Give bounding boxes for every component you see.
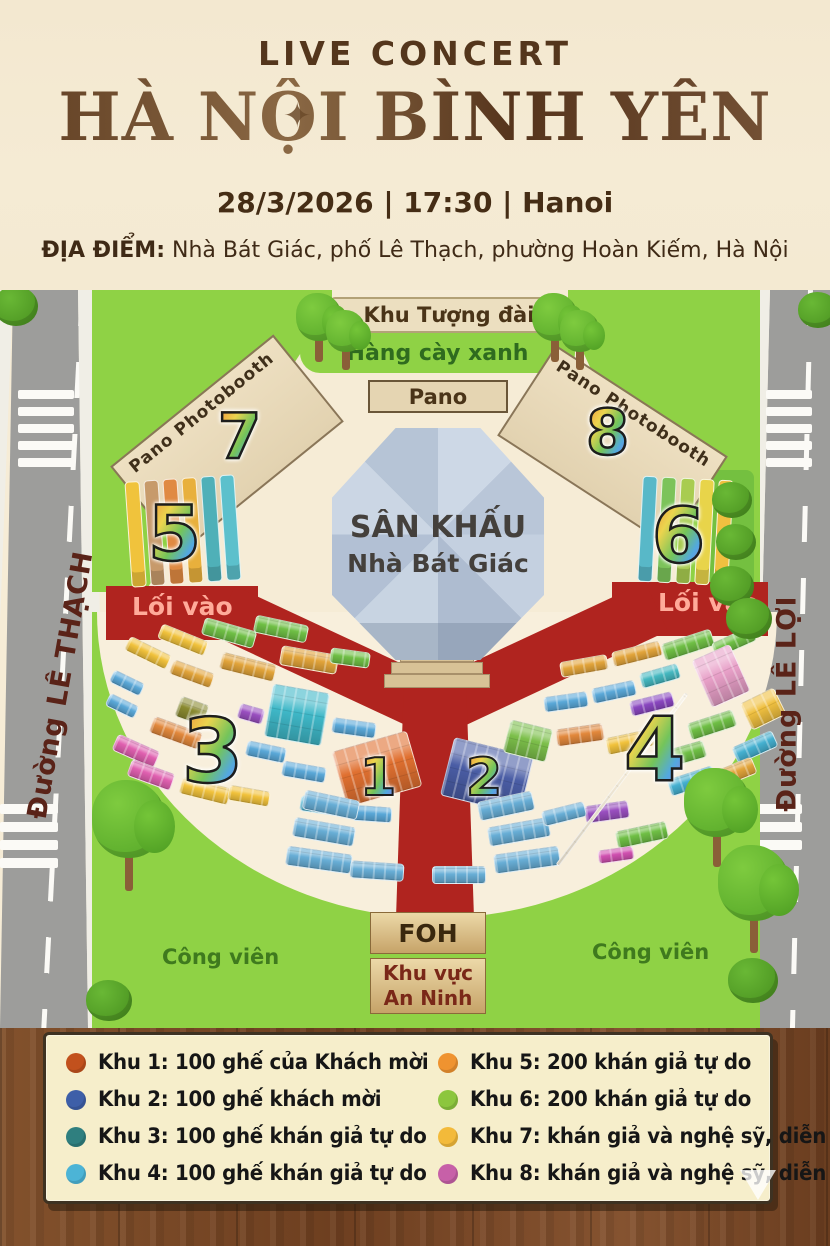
legend-text: Khu 7: khán giả và nghệ sỹ, diễn viên bbox=[470, 1124, 830, 1149]
zone-number-2: 2 bbox=[466, 752, 502, 804]
legend-dot-icon bbox=[66, 1090, 86, 1110]
tree-icon bbox=[718, 845, 790, 953]
stage-title: SÂN KHẤU bbox=[350, 510, 526, 545]
bush-icon bbox=[726, 598, 772, 639]
legend-box: Khu 1: 100 ghế của Khách mờiKhu 2: 100 g… bbox=[43, 1032, 773, 1204]
zone-number-5: 5 bbox=[148, 496, 201, 572]
tree-icon bbox=[326, 310, 366, 370]
zone-number-3: 3 bbox=[182, 708, 243, 796]
stage-octagon: SÂN KHẤU Nhà Bát Giác bbox=[332, 428, 544, 660]
legend-dot-icon bbox=[438, 1127, 458, 1147]
venue-map: Lối vào Lối vào Khu Tượng đài Hàng cày x… bbox=[0, 290, 830, 1028]
crosswalk bbox=[18, 390, 74, 467]
pano-sign: Pano bbox=[368, 380, 508, 413]
legend-dot-icon bbox=[438, 1053, 458, 1073]
park-label-left: Công viên bbox=[162, 945, 279, 969]
poster-header: LIVE CONCERT HÀ NỘI BÌNH YÊN ✦ 28/3/2026… bbox=[0, 0, 830, 290]
legend-dot-icon bbox=[438, 1164, 458, 1184]
compass-star-icon: ✦ bbox=[283, 96, 312, 136]
page-title: HÀ NỘI BÌNH YÊN bbox=[0, 78, 830, 156]
seat-block bbox=[349, 860, 404, 882]
legend-text: Khu 3: 100 ghế khán giả tự do bbox=[98, 1124, 427, 1149]
zone-number-8: 8 bbox=[586, 402, 629, 464]
zone-number-6: 6 bbox=[652, 498, 705, 574]
stage-pedestal bbox=[391, 662, 483, 674]
zone-number-4: 4 bbox=[624, 706, 685, 794]
security-line2: An Ninh bbox=[384, 986, 473, 1011]
legend-dot-icon bbox=[438, 1090, 458, 1110]
bush-icon bbox=[86, 980, 132, 1021]
street-label-le-loi: Đường LÊ LỢI bbox=[772, 589, 803, 819]
tree-icon bbox=[92, 780, 166, 891]
seat-block bbox=[264, 683, 330, 746]
stage-pedestal bbox=[384, 674, 490, 688]
seat-block bbox=[432, 866, 486, 884]
legend-item: Khu 7: khán giả và nghệ sỹ, diễn viên bbox=[438, 1122, 830, 1152]
legend-dot-icon bbox=[66, 1164, 86, 1184]
legend-text: Khu 2: 100 ghế khách mời bbox=[98, 1087, 381, 1112]
legend-item: Khu 5: 200 khán giả tự do bbox=[438, 1048, 830, 1078]
foh-box: FOH bbox=[370, 912, 486, 954]
zone-number-7: 7 bbox=[218, 406, 261, 468]
legend-item: Khu 4: 100 ghế khán giả tự do bbox=[66, 1159, 434, 1189]
tree-icon bbox=[560, 310, 600, 370]
legend-text: Khu 4: 100 ghế khán giả tự do bbox=[98, 1161, 427, 1186]
legend-item: Khu 6: 200 khán giả tự do bbox=[438, 1085, 830, 1115]
entrance-label-left: Lối vào bbox=[132, 592, 233, 621]
watermark-triangle-icon bbox=[740, 1170, 776, 1200]
security-area-box: Khu vực An Ninh bbox=[370, 958, 486, 1014]
bush-icon bbox=[712, 482, 752, 518]
venue-line: ĐỊA ĐIỂM: Nhà Bát Giác, phố Lê Thạch, ph… bbox=[0, 238, 830, 263]
park-label-right: Công viên bbox=[592, 940, 709, 964]
wood-table-background: Khu 1: 100 ghế của Khách mờiKhu 2: 100 g… bbox=[0, 1028, 830, 1246]
legend-text: Khu 1: 100 ghế của Khách mời bbox=[98, 1050, 428, 1075]
crosswalk bbox=[766, 390, 812, 467]
legend-item: Khu 1: 100 ghế của Khách mời bbox=[66, 1048, 434, 1078]
legend-text: Khu 6: 200 khán giả tự do bbox=[470, 1087, 751, 1112]
legend-dot-icon bbox=[66, 1127, 86, 1147]
venue-text: Nhà Bát Giác, phố Lê Thạch, phường Hoàn … bbox=[165, 238, 789, 263]
security-line1: Khu vực bbox=[383, 961, 473, 986]
seat-bar bbox=[200, 476, 222, 583]
bush-icon bbox=[798, 292, 830, 328]
zone-number-1: 1 bbox=[360, 752, 396, 804]
event-datetime: 28/3/2026 | 17:30 | Hanoi bbox=[0, 186, 830, 219]
legend-item: Khu 2: 100 ghế khách mời bbox=[66, 1085, 434, 1115]
bush-icon bbox=[728, 958, 778, 1003]
legend-dot-icon bbox=[66, 1053, 86, 1073]
legend-text: Khu 5: 200 khán giả tự do bbox=[470, 1050, 751, 1075]
legend-item: Khu 3: 100 ghế khán giả tự do bbox=[66, 1122, 434, 1152]
bush-icon bbox=[716, 524, 756, 560]
venue-label: ĐỊA ĐIỂM: bbox=[41, 238, 165, 263]
pretitle: LIVE CONCERT bbox=[0, 34, 830, 73]
legend-text: Khu 8: khán giả và nghệ sỹ, diễn viên bbox=[470, 1161, 830, 1186]
stage-subtitle: Nhà Bát Giác bbox=[347, 549, 529, 578]
